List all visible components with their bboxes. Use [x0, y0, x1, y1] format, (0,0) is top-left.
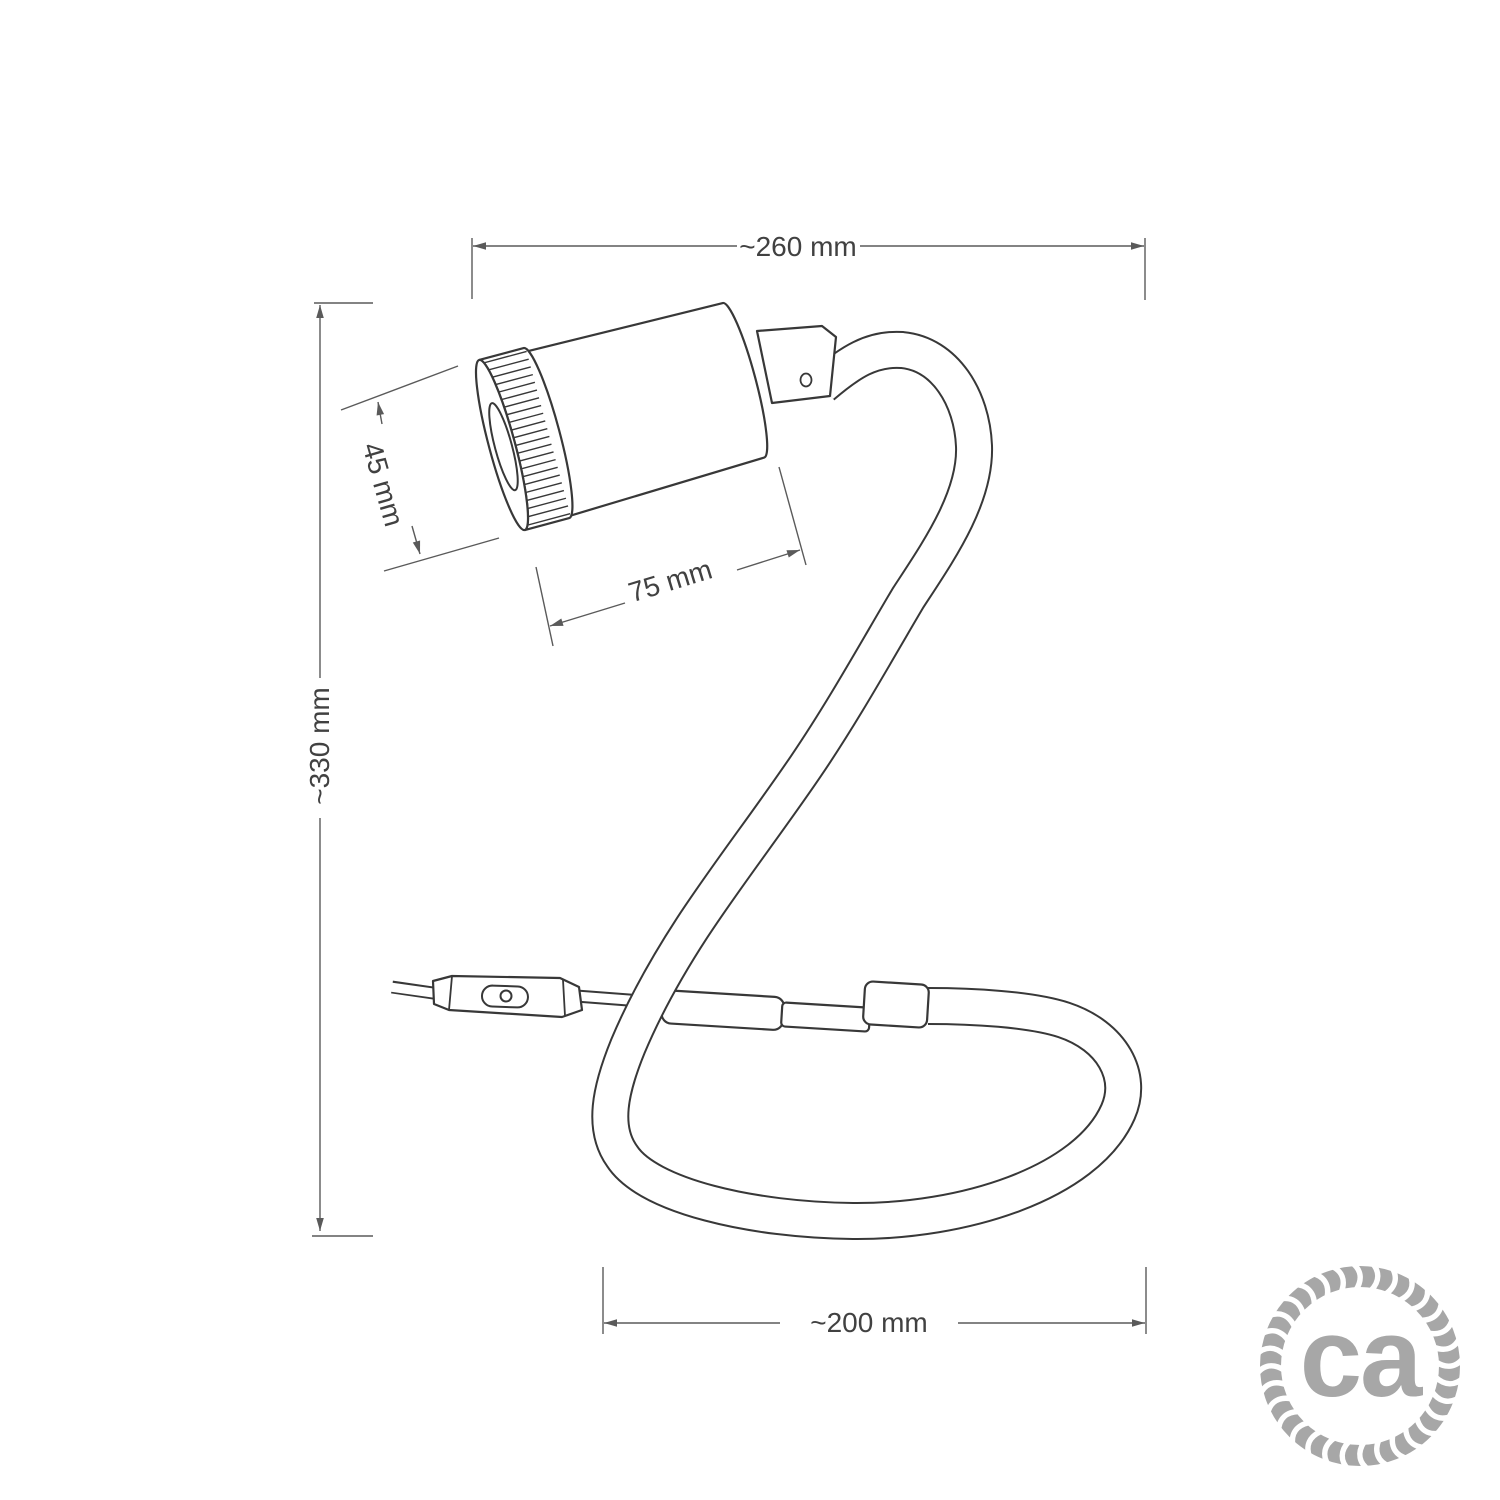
dimension-line — [378, 402, 382, 424]
tube-collar — [863, 981, 930, 1028]
extension-line — [384, 538, 499, 571]
dimension-line — [737, 550, 800, 570]
switch-button-dot[interactable] — [501, 991, 512, 1002]
drawing-canvas: ~260 mm ~330 mm 45 mm 75 mm ~200 mm — [0, 0, 1500, 1500]
extension-line — [341, 366, 458, 410]
dim-label-base-width: ~200 mm — [810, 1307, 928, 1338]
inline-switch[interactable] — [433, 976, 582, 1017]
dim-label-spot-length: 75 mm — [625, 554, 716, 609]
dim-label-overall-width: ~260 mm — [739, 231, 857, 262]
dimension-line — [550, 603, 625, 626]
extension-line — [779, 467, 806, 565]
technical-drawing: ~260 mm ~330 mm 45 mm 75 mm ~200 mm — [0, 0, 1500, 1500]
dim-label-overall-height: ~330 mm — [304, 687, 335, 805]
extension-line — [536, 567, 553, 646]
lamp-joint-connector — [757, 326, 836, 403]
dim-label-spot-diameter: 45 mm — [356, 439, 409, 530]
cable-ferrule — [661, 990, 871, 1036]
logo-text: ca — [1300, 1295, 1423, 1420]
connector-screw-hole — [801, 374, 812, 387]
dimension-line — [412, 526, 420, 554]
cable-link — [781, 1002, 870, 1031]
brand-logo: ca — [1256, 1262, 1464, 1470]
